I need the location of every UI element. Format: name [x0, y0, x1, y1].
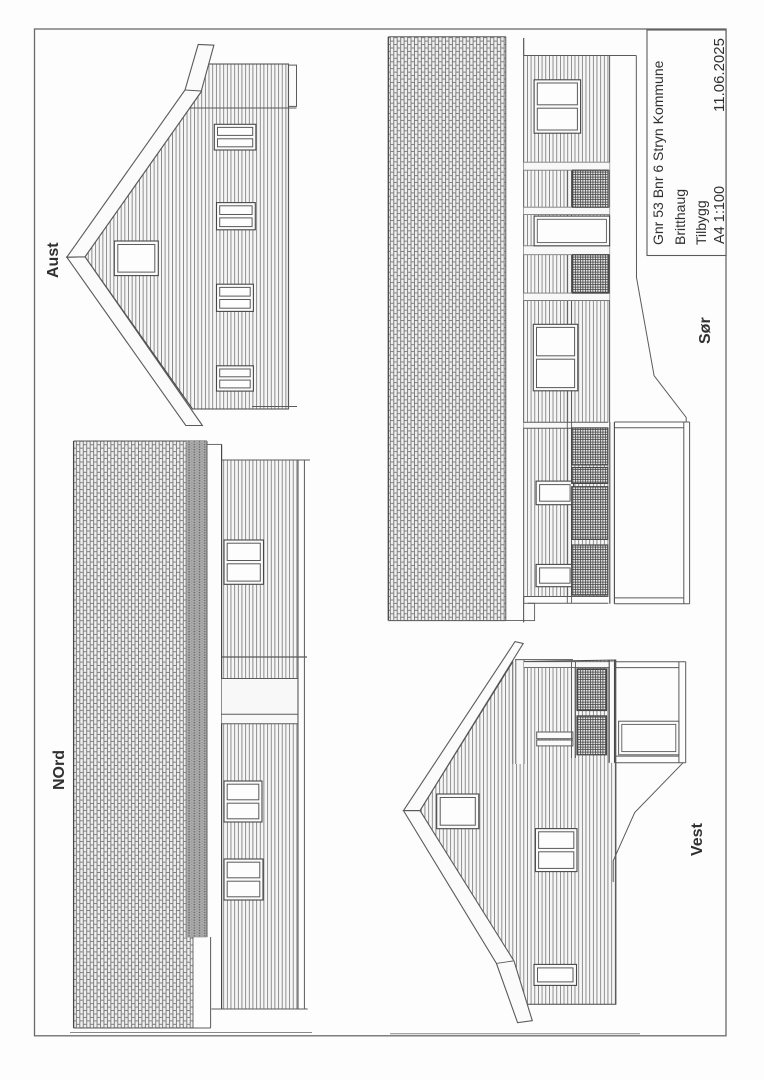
svg-text:NOrd: NOrd	[51, 750, 68, 790]
svg-text:Vest: Vest	[689, 822, 706, 856]
svg-text:Gnr 53 Bnr 6 Stryn Kommune: Gnr 53 Bnr 6 Stryn Kommune	[650, 60, 666, 245]
svg-text:Britthaug: Britthaug	[672, 189, 688, 245]
svg-text:Sør: Sør	[697, 317, 714, 344]
svg-text:11.06.2025: 11.06.2025	[711, 38, 728, 112]
svg-text:A4 1:100: A4 1:100	[712, 186, 728, 244]
svg-text:Aust: Aust	[45, 242, 62, 278]
svg-text:Tilbygg: Tilbygg	[693, 200, 709, 245]
